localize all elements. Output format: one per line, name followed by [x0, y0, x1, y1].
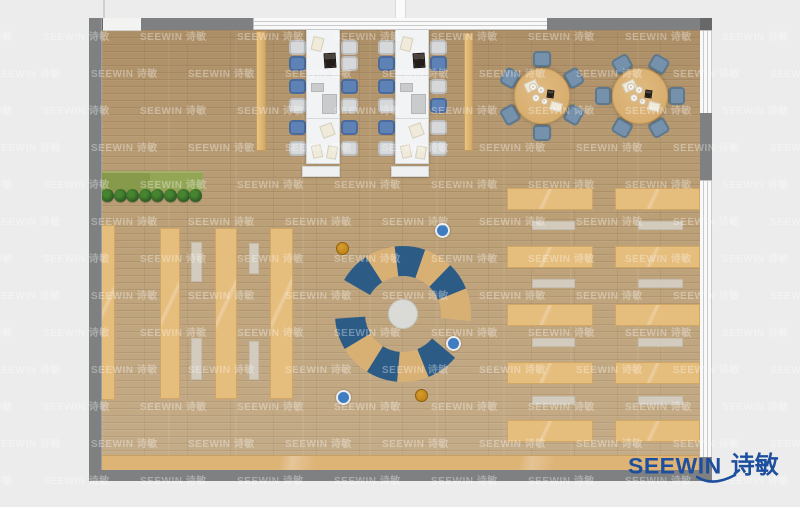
seewin-logo: SEEWIN 诗敏 [628, 453, 779, 479]
watermark-text: SEEWIN 诗敏 [722, 102, 789, 117]
top-window [253, 18, 549, 30]
watermark-text: SEEWIN 诗敏 [0, 176, 13, 191]
watermark-text: SEEWIN 诗敏 [0, 361, 61, 376]
watermark-text: SEEWIN 诗敏 [770, 65, 800, 80]
watermark-text: SEEWIN 诗敏 [0, 250, 13, 265]
watermark-text: SEEWIN 诗敏 [722, 28, 789, 43]
wall-corner-top-right [700, 18, 712, 30]
entrance-door-gap [103, 18, 141, 31]
watermark-text: SEEWIN 诗敏 [0, 65, 61, 80]
exterior-wall-line [103, 0, 105, 18]
watermark-text: SEEWIN 诗敏 [0, 213, 61, 228]
watermark-text: SEEWIN 诗敏 [0, 324, 13, 339]
watermark-text: SEEWIN 诗敏 [0, 139, 61, 154]
watermark-text: SEEWIN 诗敏 [0, 435, 61, 450]
right-window-upper [700, 30, 712, 115]
floor-plan-canvas: SEEWIN 诗敏SEEWIN 诗敏SEEWIN 诗敏SEEWIN 诗敏SEEW… [0, 0, 800, 507]
watermark-text: SEEWIN 诗敏 [770, 435, 800, 450]
watermark-text: SEEWIN 诗敏 [0, 398, 13, 413]
right-window-lower [700, 180, 712, 459]
bottom-wall [89, 470, 712, 481]
left-wall [89, 18, 102, 481]
watermark-text: SEEWIN 诗敏 [722, 324, 789, 339]
top-wall-left [141, 18, 253, 30]
exterior-column [395, 0, 406, 18]
watermark-text: SEEWIN 诗敏 [0, 102, 13, 117]
watermark-text: SEEWIN 诗敏 [0, 28, 13, 43]
top-wall-right [547, 18, 700, 30]
watermark-text: SEEWIN 诗敏 [770, 361, 800, 376]
wood-floor [101, 30, 700, 470]
watermark-text: SEEWIN 诗敏 [722, 398, 789, 413]
watermark-text: SEEWIN 诗敏 [722, 176, 789, 191]
watermark-text: SEEWIN 诗敏 [0, 472, 13, 487]
watermark-text: SEEWIN 诗敏 [770, 213, 800, 228]
logo-swoosh-icon [696, 474, 738, 488]
watermark-text: SEEWIN 诗敏 [770, 287, 800, 302]
watermark-text: SEEWIN 诗敏 [722, 250, 789, 265]
right-wall-mid [700, 113, 712, 180]
watermark-text: SEEWIN 诗敏 [0, 287, 61, 302]
watermark-text: SEEWIN 诗敏 [770, 139, 800, 154]
